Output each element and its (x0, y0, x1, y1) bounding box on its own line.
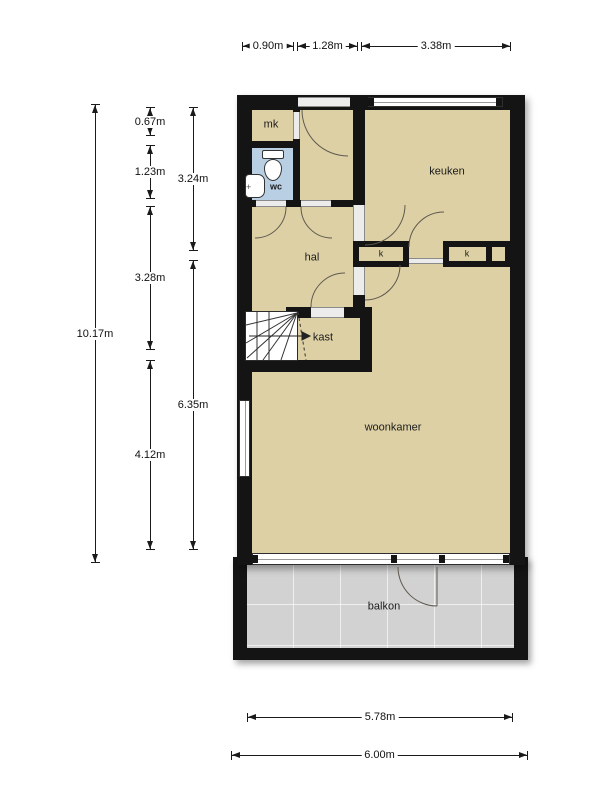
room-label-k2: k (465, 250, 470, 259)
dimension-label: 3.24m (175, 173, 212, 185)
door-opening-keuken (353, 205, 365, 245)
window-keuken (368, 97, 503, 107)
dimension-keuken-height: 3.24m (193, 108, 194, 250)
dimension-bottom-outer: 6.00m (232, 755, 527, 756)
dimension-label: 1.23m (132, 166, 169, 178)
door-opening-woonkamer (353, 265, 365, 295)
dimension-label: 0.90m (250, 40, 287, 52)
door-opening-kast (311, 307, 344, 318)
window-post (391, 555, 397, 563)
window-post (503, 555, 509, 563)
window-post (252, 555, 258, 563)
window-woonkamer-left (239, 400, 250, 477)
toilet-tank-icon (262, 150, 284, 159)
dimension-woonkamer-height: 6.35m (193, 261, 194, 549)
dimension-mk-height: 0.67m (150, 108, 151, 135)
wall-hal-top-b (286, 200, 301, 207)
room-label-hal: hal (305, 253, 320, 264)
door-opening-mk (293, 112, 300, 139)
wall-hal-top-c (331, 200, 353, 207)
dimension-label: 4.12m (132, 449, 169, 461)
room-label-k1: k (379, 250, 384, 259)
room-label-keuken: keuken (429, 167, 464, 178)
dimension-top-mk: 0.90m (243, 46, 293, 47)
wall-stairs-bottom (243, 360, 372, 372)
room-label-woonkamer: woonkamer (365, 423, 422, 434)
door-opening-entry-hal (301, 200, 331, 207)
window-post (439, 555, 445, 563)
door-opening-keuken-woonkamer (409, 258, 443, 264)
closet-small-floor (492, 247, 505, 261)
dimension-left-total: 10.17m (95, 105, 96, 562)
window-post (496, 98, 502, 106)
dimension-label: 1.28m (309, 40, 346, 52)
room-label-kast: kast (313, 333, 333, 344)
dimension-label: 5.78m (362, 711, 399, 723)
dimension-top-entry: 1.28m (298, 46, 357, 47)
room-label-balkon: balkon (368, 602, 400, 613)
front-door-opening (298, 97, 350, 107)
dimension-hal-height: 3.28m (150, 207, 151, 349)
room-label-wc: wc (270, 183, 282, 192)
dimension-label: 6.35m (175, 399, 212, 411)
room-label-mk: mk (264, 120, 279, 131)
floorplan-canvas: 0.90m 1.28m 3.38m 10.17m 0.67m 1.23m 3.2… (0, 0, 600, 800)
window-wall-balcony (252, 553, 510, 565)
dimension-label: 0.67m (132, 116, 169, 128)
dimension-top-keuken: 3.38m (362, 46, 510, 47)
staircase (245, 311, 298, 361)
dimension-label: 3.38m (418, 40, 455, 52)
door-opening-wc (256, 200, 286, 207)
dimension-label: 6.00m (361, 749, 398, 761)
dimension-bottom-inner: 5.78m (248, 717, 512, 718)
dimension-wc-height: 1.23m (150, 146, 151, 198)
sink-icon: + (245, 174, 265, 198)
dimension-label: 10.17m (74, 328, 117, 340)
dimension-woonkamer-left: 4.12m (150, 361, 151, 549)
dimension-label: 3.28m (132, 272, 169, 284)
window-post (368, 98, 374, 106)
